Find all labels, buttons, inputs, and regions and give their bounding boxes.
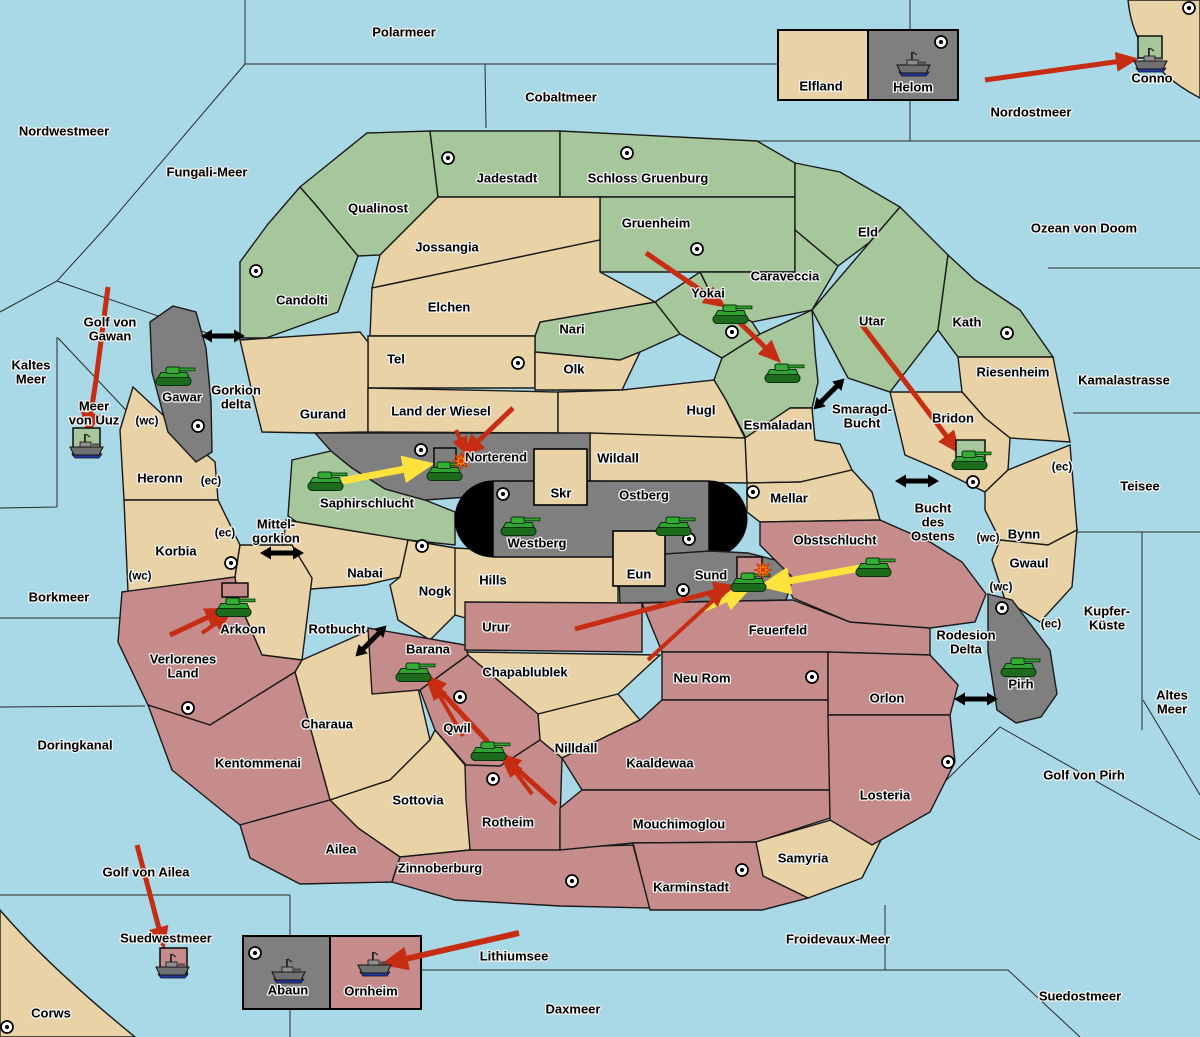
label-corws: Corws (31, 1006, 71, 1021)
supply-center-rotheim (487, 773, 499, 785)
label-obstschlucht: Obstschlucht (793, 533, 877, 548)
supply-center-yokai (726, 326, 738, 338)
label-ostberg: Ostberg (619, 488, 669, 503)
supply-center-candolti (250, 265, 262, 277)
label-qualinost: Qualinost (348, 201, 409, 216)
label-nari: Nari (559, 322, 584, 337)
label-sottovia: Sottovia (392, 793, 444, 808)
supply-center-gruenheim (691, 243, 703, 255)
supply-center-helom (935, 36, 947, 48)
label-orlon: Orlon (870, 691, 905, 706)
label-abaun: Abaun (268, 983, 309, 998)
label-eun: Eun (627, 567, 652, 582)
label-suedostmeer: Suedostmeer (1039, 989, 1121, 1004)
label-westberg: Westberg (508, 536, 567, 551)
label-kupfer-kueste: Kupfer-Küste (1084, 604, 1130, 633)
supply-center-karminstadt (736, 864, 748, 876)
supply-center-westberg (497, 488, 509, 500)
supply-center-qwil (454, 691, 466, 703)
supply-center-gawar (192, 420, 204, 432)
supply-center-hills (416, 540, 428, 552)
supply-center-pirh (996, 602, 1008, 614)
supply-center-zinnoberburg (566, 875, 578, 887)
label-gwaul: Gwaul (1009, 556, 1048, 571)
supply-center-tel (512, 357, 524, 369)
supply-center-conno (1183, 2, 1195, 14)
label-qwil: Qwil (443, 721, 470, 736)
label-golf-von-gawan: Golf vonGawan (84, 315, 137, 344)
label-pirh: Pirh (1008, 677, 1033, 692)
unit-box (1138, 36, 1162, 58)
label-kath: Kath (953, 315, 982, 330)
label-gurand: Gurand (300, 407, 346, 422)
label-neu-rom: Neu Rom (673, 671, 730, 686)
label-heronn: Heronn (137, 471, 183, 486)
label-coast-korbia-wc: (wc) (129, 571, 152, 583)
label-gawar: Gawar (162, 390, 202, 405)
label-elfland: Elfland (799, 79, 842, 94)
label-coast-korbia-ec: (ec) (215, 528, 236, 540)
supply-center-jadestadt (442, 152, 454, 164)
label-coast-bridon-ec: (ec) (1052, 462, 1073, 474)
label-samyria: Samyria (778, 851, 829, 866)
label-kaltes-meer: KaltesMeer (11, 358, 50, 387)
supply-center-bridon (967, 476, 979, 488)
label-jadestadt: Jadestadt (477, 171, 538, 186)
label-yokai: Yokai (691, 286, 725, 301)
label-feuerfeld: Feuerfeld (749, 623, 808, 638)
supply-center-abaun (249, 947, 261, 959)
label-urur: Urur (482, 620, 509, 635)
label-riesenheim: Riesenheim (977, 365, 1050, 380)
supply-center-korbia (225, 557, 237, 569)
label-froidevaux-meer: Froidevaux-Meer (786, 932, 890, 947)
unit-box (222, 583, 248, 597)
label-karminstadt: Karminstadt (653, 880, 730, 895)
label-caraveccia: Caraveccia (751, 269, 820, 284)
label-eld: Eld (858, 225, 878, 240)
label-sund: Sund (695, 568, 728, 583)
label-bridon: Bridon (932, 411, 974, 426)
label-esmaladan: Esmaladan (744, 418, 813, 433)
label-kentommenai: Kentommenai (215, 756, 301, 771)
label-polarmeer: Polarmeer (372, 25, 436, 40)
label-coast-heronn-wc: (wc) (136, 416, 159, 428)
label-conno: Conno (1131, 71, 1172, 86)
label-borkmeer: Borkmeer (29, 590, 90, 605)
label-land-der-wiesel: Land der Wiesel (391, 404, 491, 419)
supply-center-corws (1, 1021, 13, 1033)
label-mouchimoglou: Mouchimoglou (633, 817, 725, 832)
label-coast-heronn-ec: (ec) (201, 476, 222, 488)
label-korbia: Korbia (155, 544, 197, 559)
label-norterend: Norterend (465, 450, 527, 465)
label-losteria: Losteria (860, 788, 911, 803)
label-nilldall: Nilldall (555, 741, 598, 756)
label-golf-von-pirh: Golf von Pirh (1043, 768, 1125, 783)
supply-center-schloss-gruenburg (621, 147, 633, 159)
label-lithiumsee: Lithiumsee (480, 949, 549, 964)
label-nogk: Nogk (419, 584, 452, 599)
territory-olk[interactable] (535, 352, 640, 390)
label-nordostmeer: Nordostmeer (991, 105, 1072, 120)
label-helom: Helom (893, 80, 933, 95)
label-kaaldewaa: Kaaldewaa (626, 756, 694, 771)
label-coast-gwaul-wc: (wc) (990, 582, 1013, 594)
label-cobaltmeer: Cobaltmeer (525, 90, 597, 105)
label-doringkanal: Doringkanal (37, 738, 112, 753)
label-ornheim: Ornheim (344, 984, 397, 999)
label-barana: Barana (406, 642, 451, 657)
label-golf-von-ailea: Golf von Ailea (103, 865, 191, 880)
label-bynn: Bynn (1008, 527, 1041, 542)
label-nabai: Nabai (347, 566, 382, 581)
label-coast-gwaul-ec: (ec) (1041, 619, 1062, 631)
game-map: PolarmeerCobaltmeerNordwestmeerFungali-M… (0, 0, 1200, 1037)
supply-center-losteria (942, 756, 954, 768)
label-zinnoberburg: Zinnoberburg (398, 861, 483, 876)
supply-center-sund (677, 584, 689, 596)
label-arkoon: Arkoon (220, 622, 266, 637)
label-tel: Tel (387, 352, 405, 367)
territory-gruenheim[interactable] (600, 197, 795, 272)
label-candolti: Candolti (276, 293, 328, 308)
label-kamalastrasse: Kamalastrasse (1078, 373, 1170, 388)
label-charaua: Charaua (301, 717, 354, 732)
label-coast-bynn-wc: (wc) (977, 533, 1000, 545)
label-ozean-von-doom: Ozean von Doom (1031, 221, 1137, 236)
label-mellar: Mellar (770, 491, 808, 506)
label-rotbucht: Rotbucht (308, 622, 366, 637)
label-saphirschlucht: Saphirschlucht (320, 496, 415, 511)
label-teisee: Teisee (1120, 479, 1160, 494)
label-olk: Olk (564, 362, 586, 377)
label-ailea: Ailea (325, 842, 357, 857)
label-nordwestmeer: Nordwestmeer (19, 124, 109, 139)
label-schloss-gruenburg: Schloss Gruenburg (588, 171, 709, 186)
label-wildall: Wildall (597, 451, 639, 466)
label-hugl: Hugl (687, 403, 716, 418)
label-altes-meer: AltesMeer (1156, 688, 1188, 717)
label-fungali-meer: Fungali-Meer (167, 165, 248, 180)
supply-center-neu-rom (806, 671, 818, 683)
label-skr: Skr (551, 486, 572, 501)
label-suedwestmeer: Suedwestmeer (120, 931, 212, 946)
label-mittel-gorkion: Mittel-gorkion (252, 517, 300, 546)
label-chapablublek: Chapablublek (482, 665, 568, 680)
supply-center-mellar (747, 486, 759, 498)
supply-center-verlorenes-land (182, 702, 194, 714)
battle-icon (754, 561, 772, 579)
label-jossangia: Jossangia (415, 240, 479, 255)
label-hills: Hills (479, 573, 506, 588)
label-gruenheim: Gruenheim (622, 216, 691, 231)
label-daxmeer: Daxmeer (546, 1002, 601, 1017)
label-rotheim: Rotheim (482, 815, 534, 830)
label-elchen: Elchen (428, 300, 471, 315)
supply-center-kath (1001, 327, 1013, 339)
label-utar: Utar (859, 314, 885, 329)
supply-center-norterend (415, 444, 427, 456)
